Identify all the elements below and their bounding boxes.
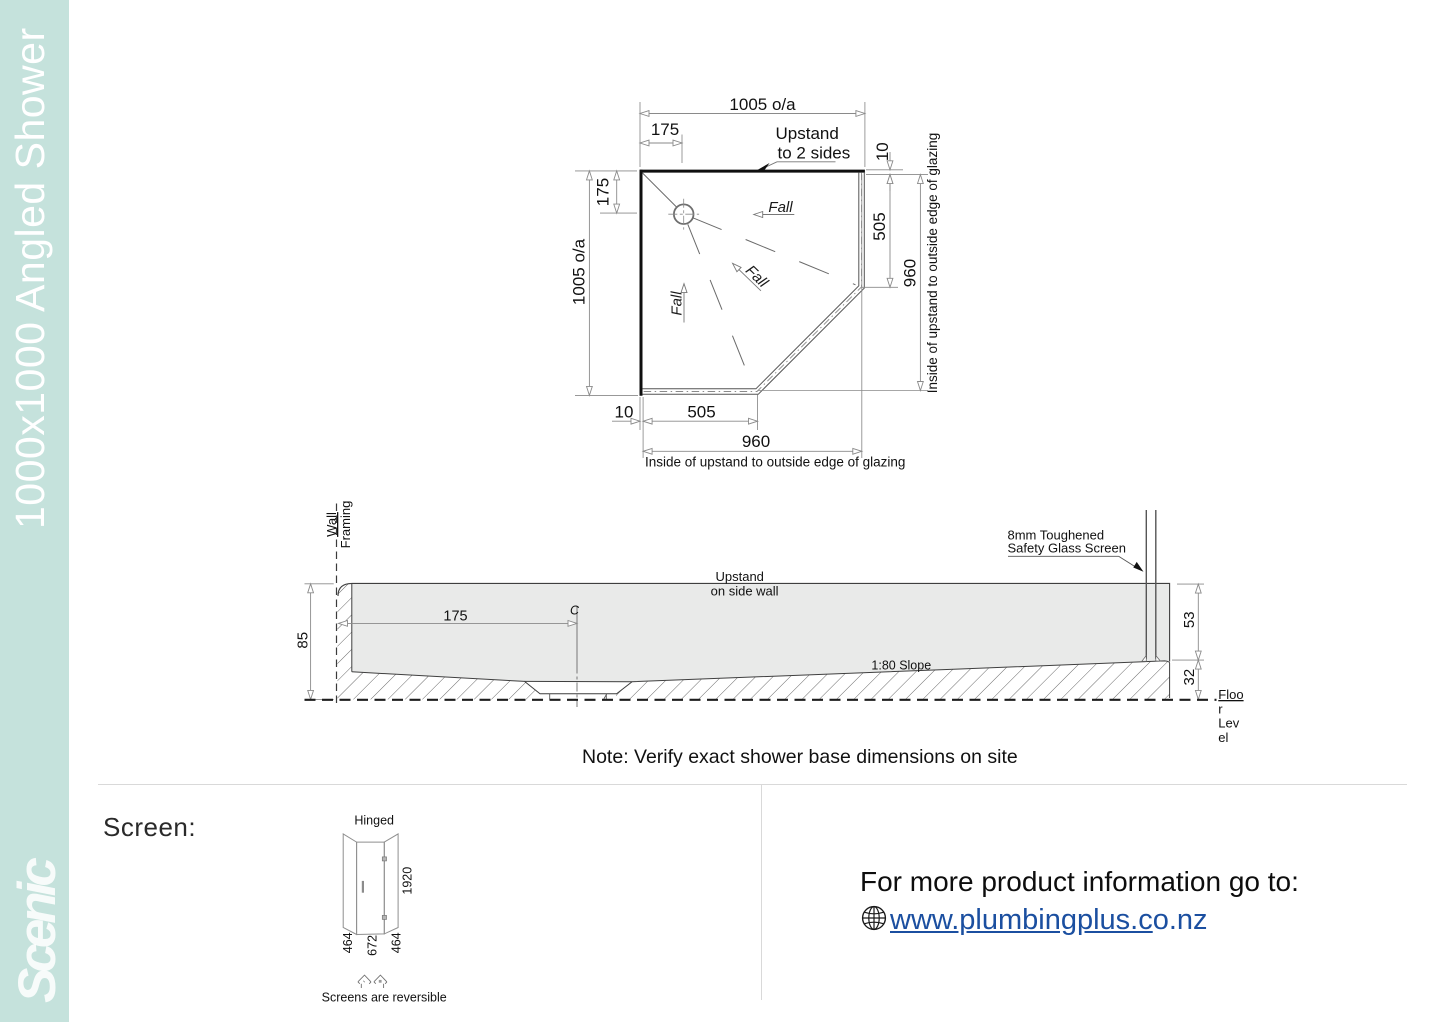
svg-text:464: 464 [341,932,355,953]
svg-text:53: 53 [1181,611,1198,628]
svg-text:Fall: Fall [742,262,772,291]
svg-text:175: 175 [651,120,679,139]
svg-text:175: 175 [594,178,613,206]
svg-text:85: 85 [295,632,312,649]
svg-text:Screens are reversible: Screens are reversible [322,991,447,1005]
svg-text:1005 o/a: 1005 o/a [729,95,796,114]
svg-text:1:80 Slope: 1:80 Slope [871,659,931,673]
svg-text:1005 o/a: 1005 o/a [570,238,589,305]
svg-text:10: 10 [615,403,634,422]
svg-text:Safety Glass Screen: Safety Glass Screen [1008,541,1127,556]
svg-text:Floo: Floo [1218,687,1243,702]
svg-text:Fall: Fall [768,199,793,216]
svg-text:505: 505 [687,403,715,422]
svg-text:Hinged: Hinged [354,814,394,828]
svg-text:on side wall: on side wall [711,584,779,599]
svg-text:Inside of upstand to outside e: Inside of upstand to outside edge of gla… [925,133,940,393]
svg-text:C: C [570,604,580,618]
svg-text:Inside of upstand to outside e: Inside of upstand to outside edge of gla… [645,455,905,470]
svg-text:Upstand: Upstand [715,569,763,584]
svg-text:672: 672 [365,935,379,956]
svg-text:175: 175 [443,608,467,624]
svg-text:Framing: Framing [338,501,353,549]
svg-text:Fall: Fall [668,291,685,316]
svg-text:960: 960 [742,432,770,451]
svg-text:32: 32 [1181,669,1198,686]
svg-text:464: 464 [390,932,404,953]
svg-text:el: el [1218,730,1228,745]
svg-text:Lev: Lev [1218,716,1239,731]
svg-text:to 2 sides: to 2 sides [778,143,851,162]
svg-text:Upstand: Upstand [776,124,839,143]
svg-text:505: 505 [870,212,889,240]
svg-text:10: 10 [873,142,892,161]
svg-text:1920: 1920 [401,867,415,895]
svg-text:960: 960 [900,259,919,287]
svg-text:r: r [1218,701,1223,716]
svg-text:Wall: Wall [324,512,339,537]
